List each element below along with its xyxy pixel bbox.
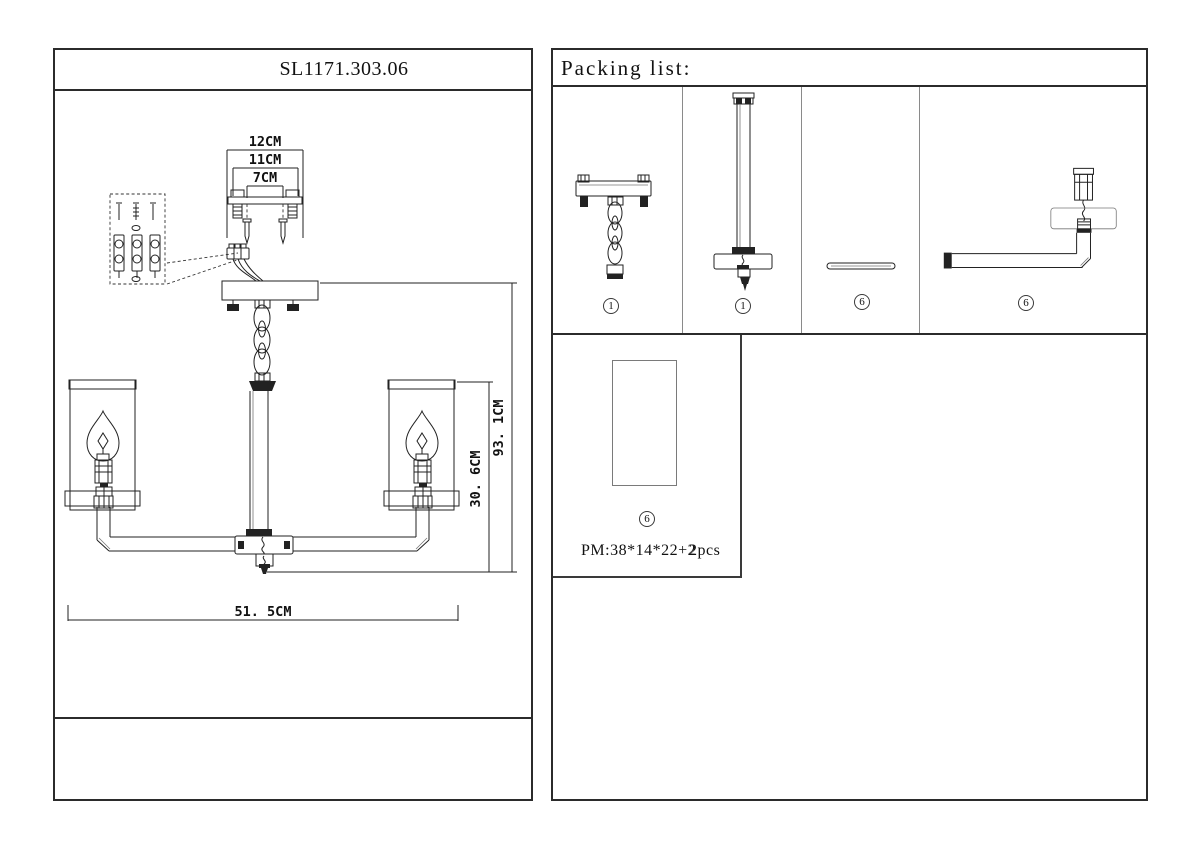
dim-label-12cm: 12CM bbox=[249, 134, 282, 150]
empty-footer-section bbox=[55, 717, 531, 799]
packing-list-panel: Packing list: 1 bbox=[551, 48, 1148, 801]
part-number-badge: 6 bbox=[1018, 295, 1034, 311]
packing-cell-flat-bar: 6 bbox=[802, 87, 920, 333]
part-number-badge: 1 bbox=[603, 298, 619, 314]
glass-shade-drawing bbox=[612, 360, 677, 486]
part-number-badge: 6 bbox=[854, 294, 870, 310]
wire-terminal-block bbox=[227, 244, 263, 281]
left-lamp bbox=[65, 380, 140, 510]
packing-parts-row: 1 1 bbox=[553, 87, 1146, 335]
part-number-badge: 6 bbox=[639, 511, 655, 527]
shade-size-label: PM:38*14*22+2 bbox=[581, 542, 696, 560]
title-bar: SL1171.303.06 bbox=[55, 50, 531, 91]
dim-label-51-5cm: 51. 5CM bbox=[235, 604, 292, 620]
mounting-bracket bbox=[228, 190, 302, 243]
dim-label-93-1cm: 93. 1CM bbox=[491, 400, 507, 457]
width-dimension: 51. 5CM bbox=[68, 604, 458, 621]
packing-cell-bracket-chain: 1 bbox=[553, 87, 683, 333]
fixture-technical-drawing: 12CM 11CM 7CM bbox=[55, 91, 531, 717]
height-dimensions: 30. 6CM 93. 1CM bbox=[267, 283, 517, 572]
central-rod bbox=[235, 391, 293, 574]
rod-hub-part-drawing bbox=[683, 87, 802, 333]
product-drawing-panel: SL1171.303.06 12CM 11CM 7CM bbox=[53, 48, 533, 801]
fixture-drawing-area: 12CM 11CM 7CM bbox=[55, 91, 531, 717]
right-lamp bbox=[384, 380, 459, 510]
packing-cell-glass-shade: 6 PM:38*14*22+2 2pcs bbox=[553, 335, 742, 578]
arm-socket-part-drawing bbox=[920, 87, 1146, 333]
packing-list-header: Packing list: bbox=[553, 50, 1146, 87]
product-code: SL1171.303.06 bbox=[55, 58, 531, 81]
part-number-badge: 1 bbox=[735, 298, 751, 314]
bracket-chain-part-drawing bbox=[553, 87, 683, 333]
shade-quantity-label: 2pcs bbox=[689, 542, 720, 560]
dim-label-7cm: 7CM bbox=[253, 170, 277, 186]
dim-label-30-6cm: 30. 6CM bbox=[468, 451, 484, 508]
dim-label-11cm: 11CM bbox=[249, 152, 282, 168]
chain bbox=[249, 300, 276, 391]
packing-cell-rod-hub: 1 bbox=[683, 87, 802, 333]
bracket-dimensions: 12CM 11CM 7CM bbox=[227, 134, 303, 238]
packing-list-title: Packing list: bbox=[553, 56, 691, 85]
hardware-detail-box bbox=[110, 194, 240, 284]
packing-cell-arm-socket: 6 bbox=[920, 87, 1146, 333]
